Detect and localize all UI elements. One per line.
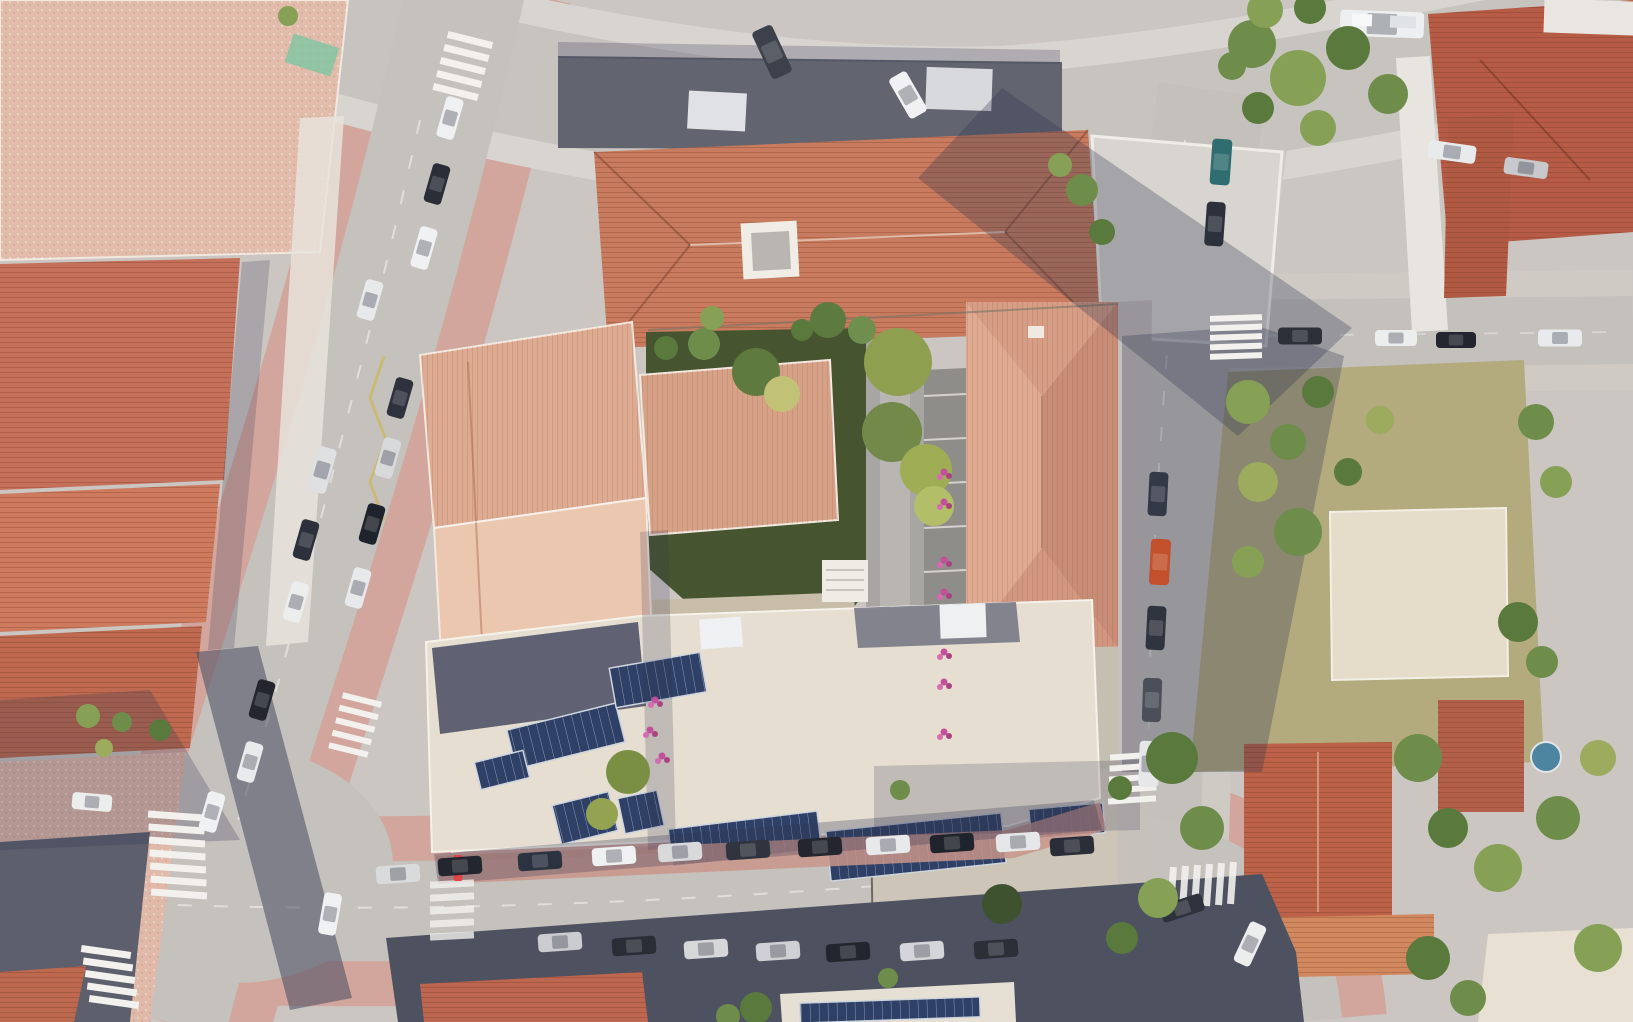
vehicles-roof <box>84 795 99 808</box>
vehicles-roof <box>1292 330 1308 342</box>
vehicles <box>825 941 870 962</box>
vehicles-roof <box>1010 835 1027 849</box>
vehicles-roof <box>1517 161 1534 175</box>
vehicles <box>973 938 1018 959</box>
tree <box>1394 734 1442 782</box>
vehicles-roof <box>1213 153 1229 171</box>
vehicles <box>797 836 842 857</box>
courtyard-bush <box>654 336 678 360</box>
balcony-flowers <box>946 653 952 659</box>
vehicles <box>1375 330 1417 346</box>
site-building-west-upper-texture <box>420 322 646 528</box>
planter-tree <box>149 719 171 741</box>
roof-hut <box>939 603 986 639</box>
vehicles-roof <box>988 942 1005 956</box>
building-shadow <box>874 760 1140 836</box>
tree <box>1242 92 1274 124</box>
vehicles-roof <box>1207 216 1222 233</box>
balcony-flowers <box>937 504 943 510</box>
vehicles <box>1209 138 1232 185</box>
vehicles-roof <box>840 945 857 959</box>
tree <box>1540 466 1572 498</box>
tree <box>1428 808 1468 848</box>
garden-flowers <box>648 702 654 708</box>
rooftop-structure <box>751 231 791 271</box>
tree <box>1406 936 1450 980</box>
garden-flowers <box>655 758 661 764</box>
vehicles-roof <box>672 845 689 859</box>
balcony-flowers <box>946 683 952 689</box>
aerial-scene <box>0 0 1633 1022</box>
vehicles-roof <box>390 867 407 881</box>
tree <box>1326 26 1370 70</box>
vehicles <box>537 931 582 952</box>
vehicles <box>755 940 800 961</box>
vehicles-roof <box>532 854 549 868</box>
bush <box>1108 776 1132 800</box>
tree <box>1334 458 1362 486</box>
tree <box>1366 406 1394 434</box>
white-roof <box>1543 0 1633 36</box>
tree <box>1138 878 1178 918</box>
balcony-flowers <box>946 561 952 567</box>
tree <box>1518 404 1554 440</box>
bush <box>890 780 910 800</box>
tree <box>1536 796 1580 840</box>
tree <box>1450 980 1486 1016</box>
tree <box>1302 376 1334 408</box>
vehicles-roof <box>914 944 931 958</box>
balcony-flowers <box>937 474 943 480</box>
tree <box>1226 380 1270 424</box>
vehicles <box>375 863 420 884</box>
tree <box>278 6 298 26</box>
garden-flowers <box>652 731 658 737</box>
balcony-flowers <box>937 594 943 600</box>
tree <box>1270 424 1306 460</box>
tree <box>1498 602 1538 642</box>
dark-roof-section <box>854 602 1020 648</box>
vehicles <box>1147 472 1168 517</box>
vehicles <box>725 839 770 860</box>
vehicles-roof <box>1552 332 1568 344</box>
vehicles-roof <box>1449 335 1463 346</box>
tree <box>1580 740 1616 776</box>
vehicles-roof <box>1145 692 1160 708</box>
vehicles <box>517 850 562 871</box>
courtyard-bush <box>764 376 800 412</box>
beige-house <box>1330 508 1508 680</box>
planter-tree <box>112 712 132 732</box>
tree <box>1106 922 1138 954</box>
chimney <box>1028 326 1044 338</box>
vehicles <box>929 832 974 853</box>
vehicles-roof <box>698 942 715 956</box>
roof-red-strip-texture <box>1444 114 1514 298</box>
vehicles <box>437 855 482 876</box>
tree <box>1368 74 1408 114</box>
garden-flowers <box>664 757 670 763</box>
tree <box>606 750 650 794</box>
vehicles-roof <box>1443 144 1462 159</box>
vehicles <box>1145 606 1166 651</box>
tree <box>1274 508 1322 556</box>
pool <box>1531 742 1561 772</box>
tree <box>1048 153 1072 177</box>
vehicles-roof <box>740 843 757 857</box>
garden-flowers <box>657 701 663 707</box>
balcony-flowers <box>946 593 952 599</box>
vehicles <box>1142 678 1163 723</box>
vehicles-roof <box>1151 486 1166 503</box>
balcony-flowers <box>937 684 943 690</box>
orange-car <box>1149 539 1171 586</box>
vehicles <box>899 940 944 961</box>
tree <box>982 884 1022 924</box>
vehicles-roof <box>880 838 897 852</box>
tree <box>1474 844 1522 892</box>
vehicles-roof <box>1149 620 1164 637</box>
vehicles-roof <box>626 939 643 953</box>
roof-tile-texture <box>0 484 220 632</box>
orange-car-roof <box>1152 553 1168 570</box>
roof-hut <box>699 617 743 650</box>
vehicles <box>865 834 910 855</box>
balcony-flowers <box>946 503 952 509</box>
balcony-flowers <box>937 734 943 740</box>
balcony-flowers <box>937 562 943 568</box>
tree <box>1232 546 1264 578</box>
roof-shed <box>925 67 992 111</box>
vehicles <box>657 841 702 862</box>
roof-shed <box>687 91 747 132</box>
balcony-flowers <box>937 654 943 660</box>
vehicles <box>611 935 656 956</box>
vehicles <box>71 792 112 812</box>
vehicles <box>1204 201 1226 246</box>
balcony-flowers <box>946 733 952 739</box>
vehicles-roof <box>322 905 337 922</box>
tree <box>1238 462 1278 502</box>
vehicles-roof <box>1064 839 1081 853</box>
bush <box>878 968 898 988</box>
tree <box>586 798 618 830</box>
camper-roof <box>1352 14 1372 27</box>
courtyard-bush <box>688 328 720 360</box>
planter-tree <box>95 739 113 757</box>
vehicles-roof <box>606 849 623 863</box>
roof-tile-corner-texture <box>0 966 86 1022</box>
balcony-flowers <box>946 473 952 479</box>
vehicles <box>683 938 728 959</box>
tree <box>1526 646 1558 678</box>
vehicles-roof <box>944 836 961 850</box>
vehicles-roof <box>1388 333 1403 344</box>
tree <box>1180 806 1224 850</box>
tree <box>1574 924 1622 972</box>
brick-patio-texture <box>1438 700 1524 812</box>
tree <box>1300 110 1336 146</box>
vehicles <box>995 831 1040 852</box>
courtyard-bush <box>700 306 724 330</box>
vehicles <box>1049 835 1094 856</box>
vehicles-roof <box>552 935 569 949</box>
vehicles <box>1278 328 1322 345</box>
vehicles-roof <box>452 859 469 873</box>
tree <box>1066 174 1098 206</box>
tree <box>848 316 876 344</box>
vehicles <box>591 845 636 866</box>
tree <box>1146 732 1198 784</box>
camper-roof <box>1390 16 1416 29</box>
vehicles-roof <box>770 944 787 958</box>
courtyard-bush <box>864 328 932 396</box>
tree <box>1218 52 1246 80</box>
vehicles <box>1538 330 1582 347</box>
tree <box>1089 219 1115 245</box>
planter-tree <box>76 704 100 728</box>
tree <box>810 302 846 338</box>
roof-tile-texture <box>0 258 240 490</box>
tree <box>791 319 813 341</box>
garden-flowers <box>643 732 649 738</box>
vehicles <box>1436 332 1476 348</box>
aerial-photo <box>0 0 1633 1022</box>
tree <box>1270 50 1326 106</box>
vehicles-roof <box>812 840 829 854</box>
